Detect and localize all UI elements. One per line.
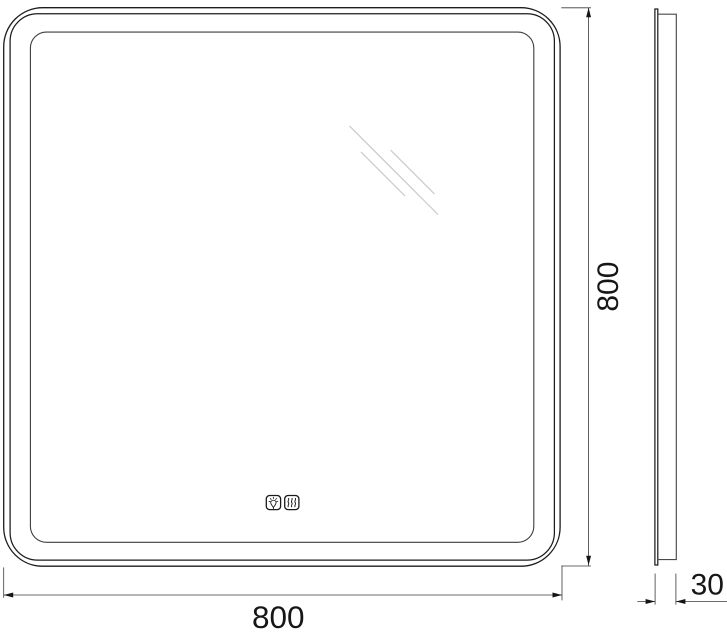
svg-text:30: 30 [691,568,724,601]
svg-text:800: 800 [592,262,625,312]
svg-text:800: 800 [252,599,305,632]
